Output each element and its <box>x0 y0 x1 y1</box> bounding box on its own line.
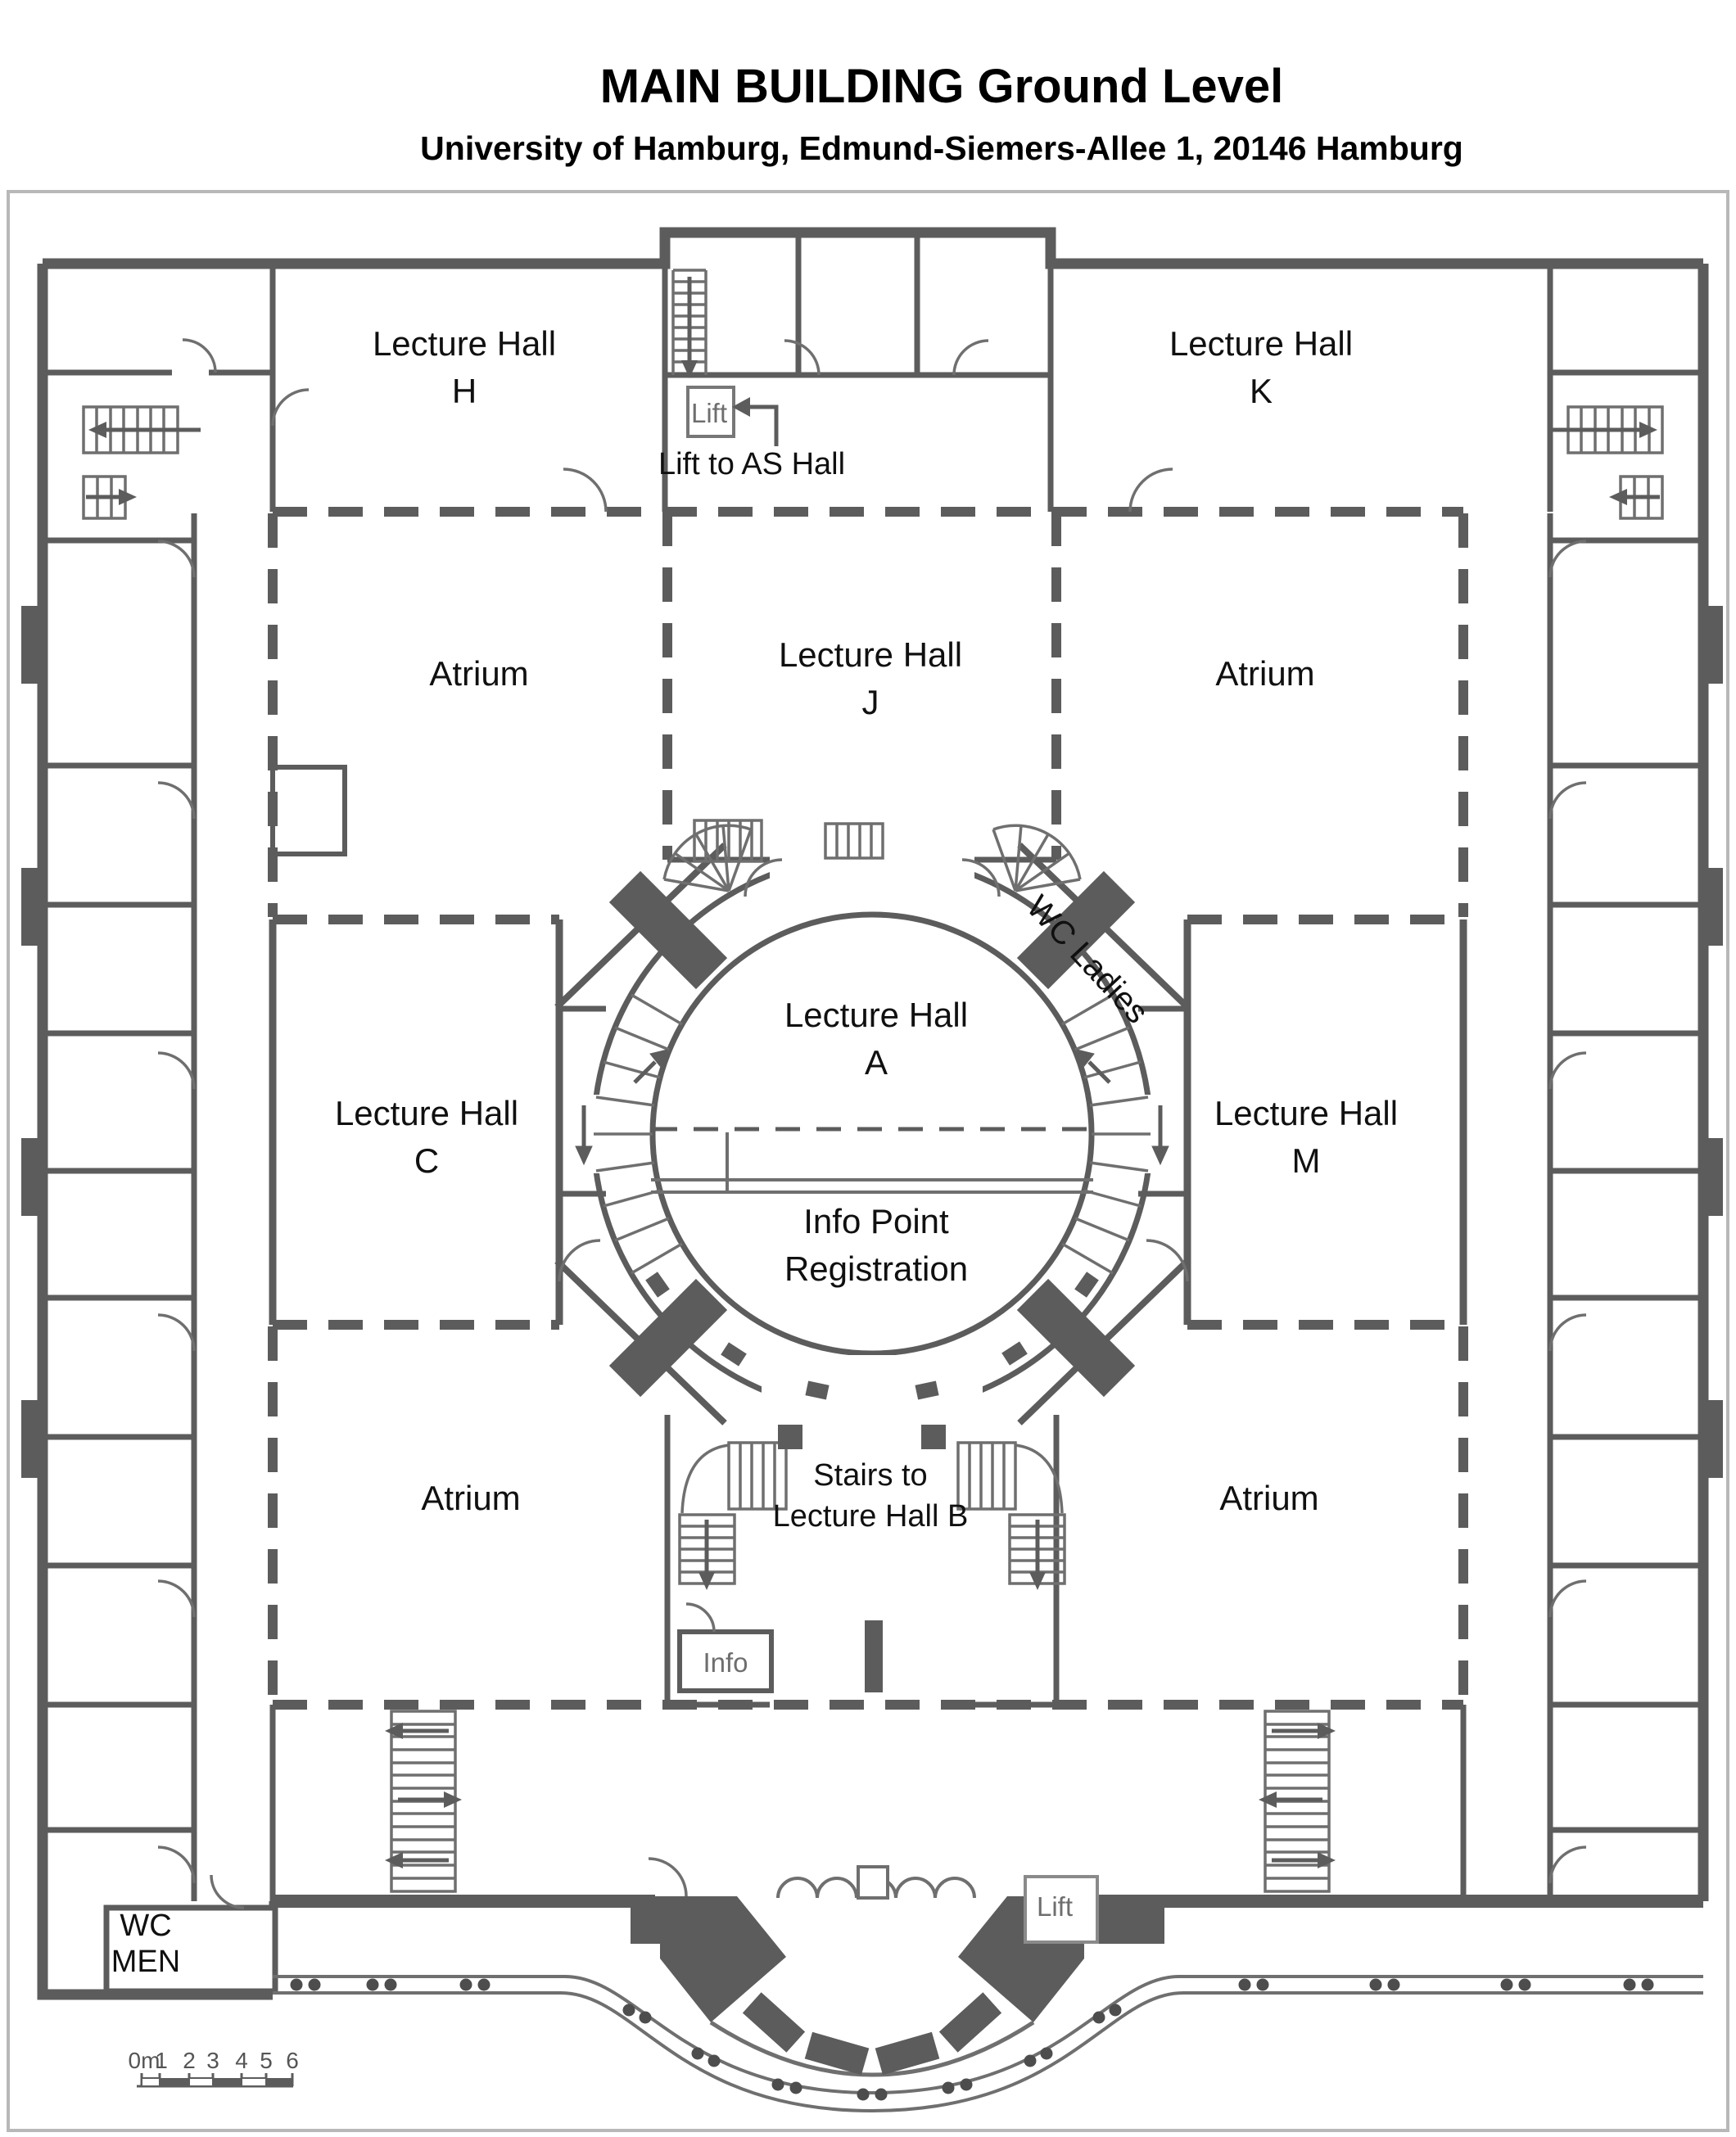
entrance-pillars <box>743 1992 1001 2075</box>
lecture-hall-c-line2: C <box>335 1137 518 1185</box>
lecture-hall-k-label: Lecture Hall K <box>1169 320 1353 415</box>
wc-men-line1: WC <box>111 1908 180 1944</box>
lecture-hall-c-label: Lecture Hall C <box>335 1090 518 1185</box>
lift-entrance-label: Lift <box>1037 1891 1073 1922</box>
stairs-south-right <box>1259 1711 1336 1891</box>
info-booth-label: Info <box>703 1647 748 1678</box>
lift-arrow-icon <box>732 397 776 446</box>
atrium-se-label: Atrium <box>1219 1475 1318 1522</box>
lecture-hall-k-line1: Lecture Hall <box>1169 320 1353 368</box>
lecture-hall-k-line2: K <box>1169 368 1353 415</box>
scale-tick-2: 2 <box>183 2049 196 2073</box>
lecture-hall-h-line1: Lecture Hall <box>373 320 556 368</box>
info-point-line2: Registration <box>784 1245 968 1293</box>
stairs-to-b-label: Stairs to Lecture Hall B <box>773 1455 969 1537</box>
scale-tick-3: 3 <box>206 2049 219 2073</box>
scale-tick-6: 6 <box>286 2049 299 2073</box>
lecture-hall-a-label: Lecture Hall A <box>784 992 968 1087</box>
walkway <box>273 1977 1703 2111</box>
stairs-south-left <box>385 1711 462 1891</box>
info-desk-wall <box>651 1180 1093 1192</box>
outer-walls <box>21 233 1723 1995</box>
lecture-hall-h-line2: H <box>373 368 556 415</box>
lecture-hall-a-line1: Lecture Hall <box>784 992 968 1039</box>
lift-top-label: Lift <box>691 398 727 429</box>
atrium-ne-label: Atrium <box>1215 650 1314 698</box>
rotunda <box>557 834 1187 1449</box>
lecture-hall-j-label: Lecture Hall J <box>779 631 962 726</box>
plan-frame <box>8 192 1728 2130</box>
ring-stairs-east <box>1062 995 1151 1273</box>
atrium-sw-label: Atrium <box>421 1475 520 1522</box>
ring-stairs-west <box>594 995 682 1273</box>
lecture-hall-m-label: Lecture Hall M <box>1214 1090 1398 1185</box>
stairs-to-b-line2: Lecture Hall B <box>773 1496 969 1537</box>
entrance-crescent <box>711 2022 1033 2075</box>
lecture-hall-j-line1: Lecture Hall <box>779 631 962 679</box>
lecture-hall-c-line1: Lecture Hall <box>335 1090 518 1137</box>
scale-tick-1: 1 <box>155 2049 168 2073</box>
atrium-nw-label: Atrium <box>429 650 528 698</box>
floor-plan-page: MAIN BUILDING Ground Level University of… <box>0 0 1736 2137</box>
lecture-hall-h-label: Lecture Hall H <box>373 320 556 415</box>
lecture-hall-j-line2: J <box>779 679 962 726</box>
stairs-to-b-line1: Stairs to <box>773 1455 969 1496</box>
scale-tick-4: 4 <box>235 2049 248 2073</box>
lecture-hall-a-line2: A <box>784 1039 968 1087</box>
wc-men-label: WC MEN <box>111 1908 180 1980</box>
lift-to-as-hall-label: Lift to AS Hall <box>658 444 845 485</box>
info-point-label: Info Point Registration <box>784 1198 968 1293</box>
scale-tick-5: 5 <box>260 2049 273 2073</box>
lecture-hall-m-line1: Lecture Hall <box>1214 1090 1398 1137</box>
stairs-top-left <box>84 407 201 518</box>
stairs-top-right <box>1548 407 1662 518</box>
wc-men-line2: MEN <box>111 1944 180 1980</box>
scale-bar <box>137 2073 293 2086</box>
info-point-line1: Info Point <box>784 1198 968 1245</box>
lecture-hall-m-line2: M <box>1214 1137 1398 1185</box>
